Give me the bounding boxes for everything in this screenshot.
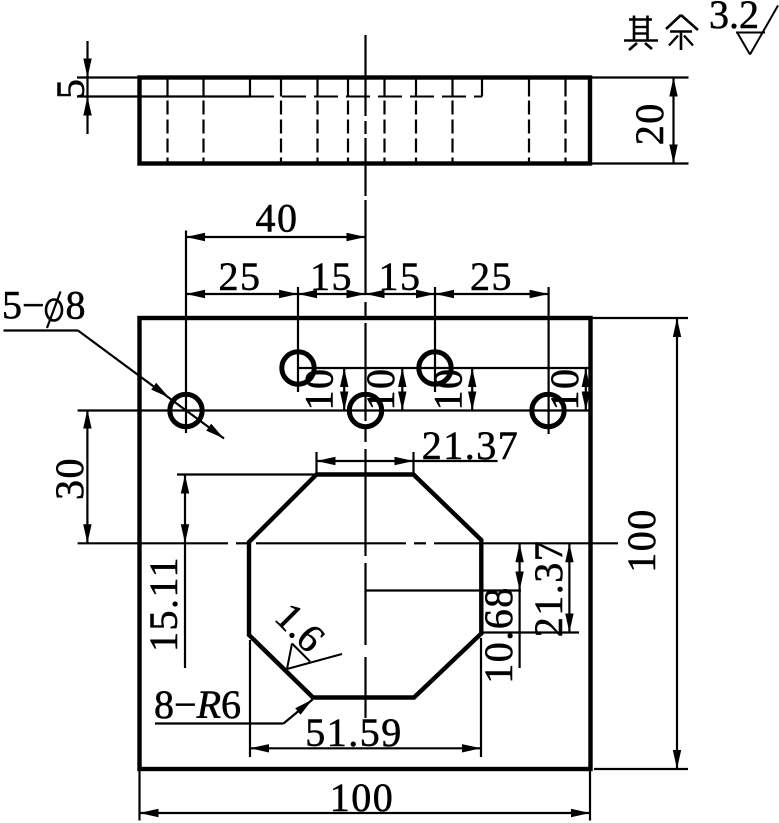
svg-text:25: 25 xyxy=(470,254,513,299)
svg-text:51.59: 51.59 xyxy=(305,710,403,755)
svg-text:10.68: 10.68 xyxy=(476,586,521,684)
svg-text:100: 100 xyxy=(330,775,395,820)
svg-text:30: 30 xyxy=(47,457,92,500)
svg-text:15: 15 xyxy=(310,254,353,299)
svg-text:10: 10 xyxy=(426,368,471,411)
svg-text:10: 10 xyxy=(296,368,341,411)
svg-text:21.37: 21.37 xyxy=(526,540,571,638)
svg-text:25: 25 xyxy=(219,254,262,299)
svg-text:15.11: 15.11 xyxy=(141,556,186,652)
svg-text:10: 10 xyxy=(542,368,587,411)
svg-text:8: 8 xyxy=(66,283,86,328)
svg-text:5: 5 xyxy=(48,78,93,100)
svg-text:3.2: 3.2 xyxy=(709,0,759,37)
svg-text:8−R6: 8−R6 xyxy=(154,682,241,727)
svg-text:100: 100 xyxy=(619,508,664,573)
svg-text:15: 15 xyxy=(379,254,422,299)
svg-text:40: 40 xyxy=(256,196,299,241)
svg-text:10: 10 xyxy=(358,368,403,411)
svg-text:20: 20 xyxy=(627,102,672,145)
svg-text:5−: 5− xyxy=(2,283,45,328)
svg-text:21.37: 21.37 xyxy=(422,423,520,468)
